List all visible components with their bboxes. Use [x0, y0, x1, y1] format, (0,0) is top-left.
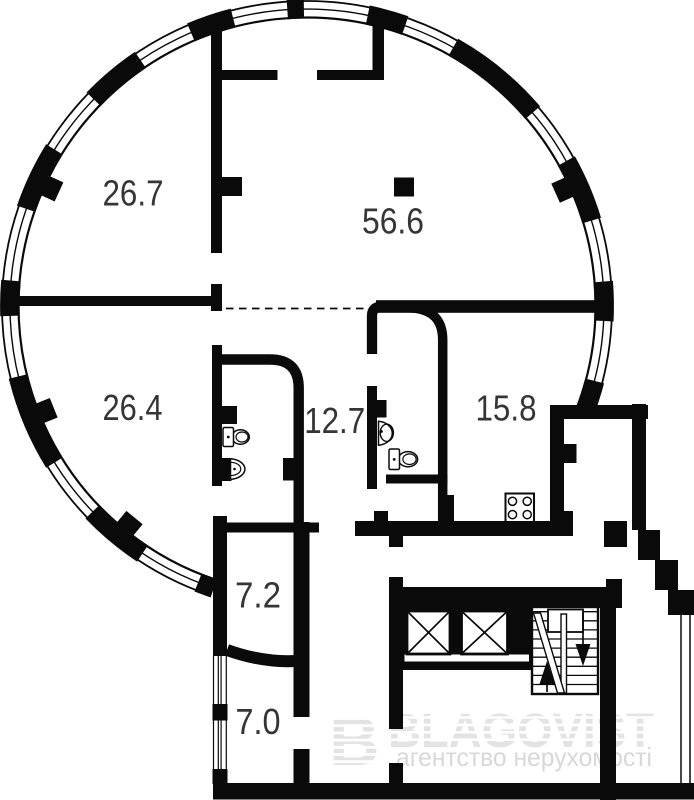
svg-text:7.0: 7.0 — [236, 701, 281, 742]
svg-text:15.8: 15.8 — [476, 388, 537, 429]
svg-text:26.7: 26.7 — [103, 173, 164, 214]
svg-text:56.6: 56.6 — [362, 201, 424, 242]
svg-text:7.2: 7.2 — [235, 575, 281, 616]
svg-text:26.4: 26.4 — [103, 387, 163, 428]
svg-text:12.7: 12.7 — [304, 400, 365, 441]
